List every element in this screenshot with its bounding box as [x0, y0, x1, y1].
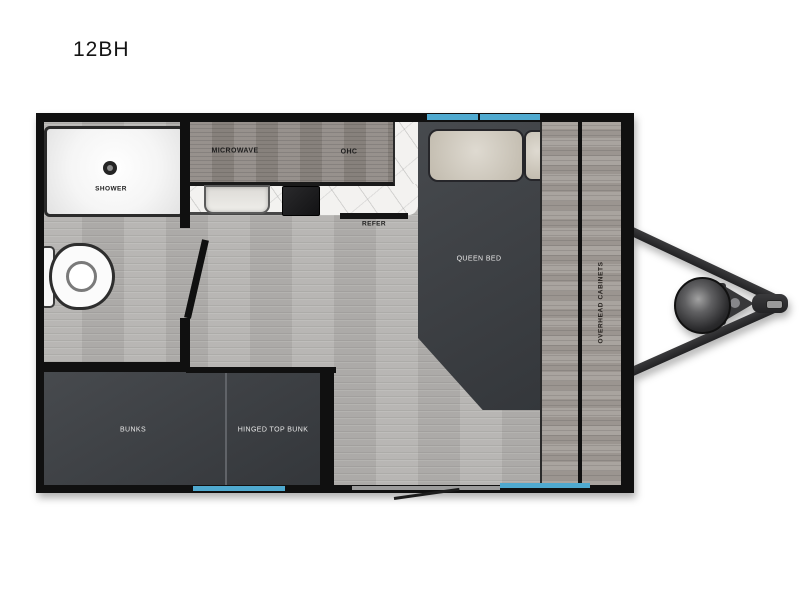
toilet-seat-ring — [66, 261, 97, 292]
hinged-top-bunk-label: HINGED TOP BUNK — [238, 427, 309, 434]
cooktop — [282, 186, 320, 216]
bunk-top-edge — [186, 367, 336, 373]
tongue-plate-hole — [730, 298, 740, 308]
bathroom-wall-upper — [180, 115, 190, 228]
shower-drain-center — [107, 165, 113, 171]
window-bottom-left — [193, 486, 285, 491]
outer-wall-right — [621, 113, 634, 493]
overhead-cabinets-label-box: OVERHEAD CABINETS — [582, 120, 621, 485]
refer-front-edge — [340, 213, 408, 219]
tongue-wheel — [674, 277, 731, 334]
entry-door-strip — [352, 486, 500, 490]
floorplan-canvas: 12BH SHOWER MICROWAVE OHC REFER — [0, 0, 800, 600]
queen-bed-label: QUEEN BED — [457, 256, 502, 263]
outer-wall-left — [36, 113, 44, 493]
tongue-hitch-slot — [766, 300, 783, 309]
window-top-left-segment — [427, 114, 478, 120]
window-top-right-segment — [480, 114, 540, 120]
bed-pillow-left — [428, 129, 524, 182]
bunk-divider — [225, 373, 227, 485]
refer-label: REFER — [362, 221, 386, 228]
kitchen-sink — [204, 185, 270, 214]
bathroom-wall-stub — [180, 318, 190, 364]
outer-wall-top — [36, 113, 634, 122]
window-bottom-right — [500, 483, 590, 488]
trailer-floorplan: SHOWER MICROWAVE OHC REFER QUEEN BED OVE… — [0, 0, 800, 600]
bathroom-bottom-wall — [36, 362, 190, 372]
bunk-right-wall — [320, 367, 334, 487]
microwave-label: MICROWAVE — [211, 148, 258, 155]
ohc-label: OHC — [341, 149, 358, 156]
overhead-cabinets-label: OVERHEAD CABINETS — [598, 261, 605, 343]
shower-label: SHOWER — [95, 186, 127, 193]
rear-cabinet-strip-1 — [540, 120, 580, 485]
bunks-label: BUNKS — [120, 427, 146, 434]
